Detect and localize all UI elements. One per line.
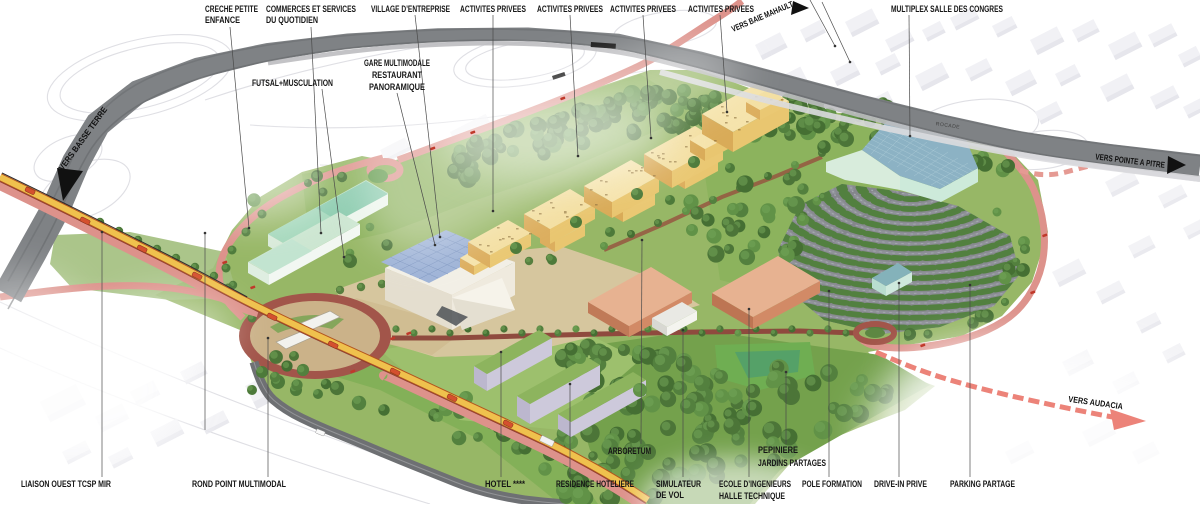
svg-text:ROND POINT MULTIMODAL: ROND POINT MULTIMODAL — [192, 479, 286, 489]
svg-text:DRIVE-IN PRIVE: DRIVE-IN PRIVE — [874, 479, 927, 489]
svg-text:CRECHE PETITE: CRECHE PETITE — [205, 4, 258, 14]
svg-text:ACTIVITES PRIVEES: ACTIVITES PRIVEES — [537, 4, 603, 14]
svg-text:PANORAMIQUE: PANORAMIQUE — [369, 82, 425, 92]
svg-text:VILLAGE D’ENTREPRISE: VILLAGE D’ENTREPRISE — [371, 4, 450, 14]
svg-text:PARKING PARTAGE: PARKING PARTAGE — [950, 479, 1015, 489]
svg-text:FUTSAL+MUSCULATION: FUTSAL+MUSCULATION — [252, 78, 333, 88]
svg-text:ARBORETUM: ARBORETUM — [608, 446, 651, 456]
svg-text:HOTEL ****: HOTEL **** — [485, 479, 525, 489]
svg-text:PEPINIERE: PEPINIERE — [758, 445, 798, 455]
svg-text:MULTIPLEX SALLE DES CONGRES: MULTIPLEX SALLE DES CONGRES — [891, 4, 1003, 14]
svg-text:ECOLE D’INGENIEURS: ECOLE D’INGENIEURS — [719, 479, 791, 489]
svg-text:HALLE TECHNIQUE: HALLE TECHNIQUE — [719, 491, 785, 501]
svg-text:ACTIVITES PRIVEES: ACTIVITES PRIVEES — [460, 4, 526, 14]
svg-text:JARDINS PARTAGES: JARDINS PARTAGES — [758, 458, 826, 468]
svg-text:RESIDENCE HOTELIERE: RESIDENCE HOTELIERE — [556, 479, 634, 489]
svg-text:DU QUOTIDIEN: DU QUOTIDIEN — [266, 15, 318, 25]
svg-text:DE VOL: DE VOL — [656, 490, 684, 500]
svg-text:POLE FORMATION: POLE FORMATION — [802, 479, 862, 489]
svg-text:GARE MULTIMODALE: GARE MULTIMODALE — [364, 58, 430, 68]
svg-text:ENFANCE: ENFANCE — [205, 15, 240, 25]
svg-text:COMMERCES ET SERVICES: COMMERCES ET SERVICES — [266, 4, 356, 14]
svg-text:ACTIVITES PRIVEES: ACTIVITES PRIVEES — [610, 4, 676, 14]
svg-text:RESTAURANT: RESTAURANT — [372, 70, 422, 80]
svg-text:LIAISON OUEST TCSP MIR: LIAISON OUEST TCSP MIR — [21, 479, 111, 489]
svg-text:SIMULATEUR: SIMULATEUR — [656, 479, 701, 489]
svg-text:ACTIVITES PRIVEES: ACTIVITES PRIVEES — [688, 4, 754, 14]
